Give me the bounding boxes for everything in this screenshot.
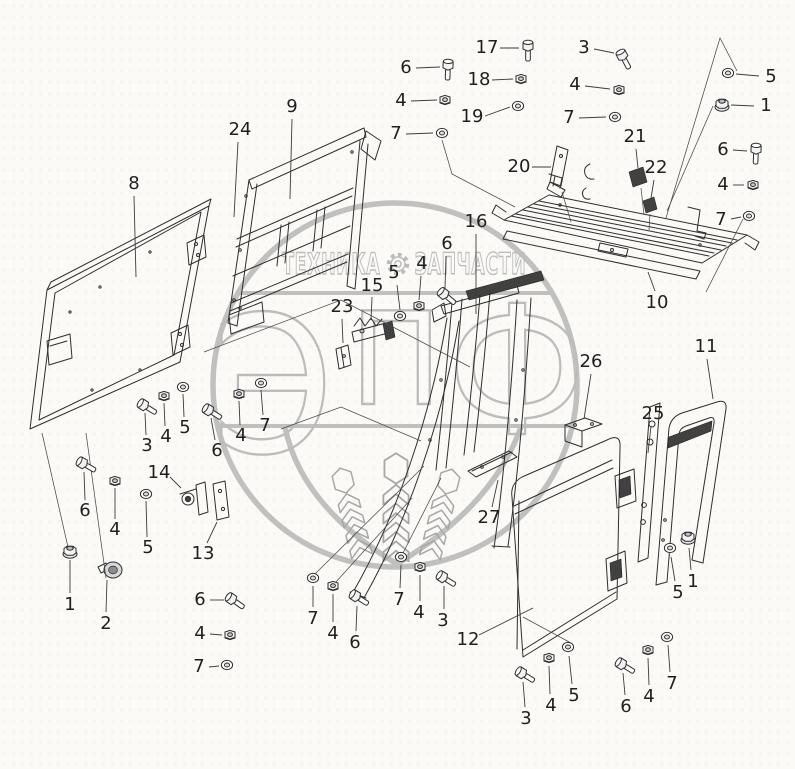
callout-label-1: 1: [64, 594, 75, 615]
nut-icon: [328, 581, 338, 590]
leader-line: [689, 548, 691, 570]
bolt-icon: [514, 666, 537, 685]
callout-label-4: 4: [416, 253, 427, 274]
nut-icon: [440, 95, 450, 104]
bolt-icon: [614, 657, 637, 676]
leader-line: [416, 67, 440, 68]
callout-label-4: 4: [717, 174, 728, 195]
callout-label-4: 4: [327, 623, 338, 644]
bolt-icon: [75, 456, 98, 475]
callout-label-5: 5: [568, 685, 579, 706]
nut-icon: [414, 301, 424, 310]
bolt-icon: [224, 591, 247, 611]
logo-letter-f: Ф: [447, 268, 586, 477]
nut-icon: [748, 180, 758, 189]
flange-nut-icon: [681, 532, 695, 544]
leader-line: [406, 133, 433, 134]
part-20-strap: [547, 146, 568, 197]
nut-icon: [225, 630, 235, 639]
leader-line: [733, 150, 747, 151]
callout-label-3: 3: [141, 435, 152, 456]
leader-line: [651, 180, 654, 198]
callout-label-26: 26: [580, 351, 603, 372]
leader-line: [134, 196, 136, 277]
callout-label-7: 7: [715, 209, 726, 230]
nut-icon: [516, 74, 526, 83]
leader-line: [485, 107, 510, 116]
washer-icon: [512, 101, 523, 110]
leader-line: [290, 119, 292, 199]
callout-label-3: 3: [578, 37, 589, 58]
part-22-spacer: [643, 197, 657, 213]
bolt-icon: [443, 59, 454, 80]
parts-catalog-figure: ТЕХНИКА ЗАПЧАСТИ Э П Ф: [0, 0, 795, 769]
callout-label-4: 4: [545, 695, 556, 716]
part-8-side-panel: [30, 199, 211, 429]
exploded-parts-diagram: ТЕХНИКА ЗАПЧАСТИ Э П Ф: [0, 0, 795, 769]
callout-label-7: 7: [193, 656, 204, 677]
leader-line: [170, 477, 181, 488]
leader-line: [84, 472, 85, 500]
leader-line: [210, 634, 222, 635]
bolt-icon: [523, 40, 533, 61]
callout-label-6: 6: [349, 632, 360, 653]
nut-icon: [159, 391, 169, 400]
callout-label-6: 6: [620, 696, 631, 717]
flange-nut-icon: [715, 99, 729, 111]
callout-label-9: 9: [286, 96, 297, 117]
leader-line: [549, 666, 550, 694]
leader-line: [164, 403, 165, 426]
leader-line: [183, 394, 184, 417]
callout-label-6: 6: [194, 589, 205, 610]
logo-letter-p: П: [350, 286, 441, 435]
callout-label-5: 5: [765, 66, 776, 87]
leader-line: [668, 645, 670, 672]
leader-line: [356, 606, 357, 631]
washer-icon: [722, 68, 733, 77]
part-25-pillar-strut: [638, 403, 660, 562]
nut-icon: [643, 645, 653, 654]
callout-label-6: 6: [717, 139, 728, 160]
callout-label-4: 4: [643, 686, 654, 707]
leader-line: [579, 117, 606, 118]
callout-label-2: 2: [100, 613, 111, 634]
bolt-icon: [136, 398, 159, 417]
callout-label-7: 7: [390, 123, 401, 144]
callout-label-19: 19: [461, 106, 484, 127]
callout-label-4: 4: [395, 90, 406, 111]
callout-label-6: 6: [211, 440, 222, 461]
callout-label-1: 1: [760, 95, 771, 116]
callout-label-7: 7: [666, 673, 677, 694]
callout-label-7: 7: [393, 589, 404, 610]
callout-label-4: 4: [109, 519, 120, 540]
washer-icon: [140, 489, 151, 498]
nut-icon: [415, 562, 425, 571]
leader-line: [411, 100, 437, 101]
callout-label-12: 12: [457, 629, 480, 650]
callout-label-5: 5: [179, 417, 190, 438]
callout-label-10: 10: [646, 292, 669, 313]
leader-line: [731, 105, 754, 106]
callout-label-14: 14: [148, 462, 171, 483]
part-11-right-frame: [656, 401, 726, 585]
washer-icon: [562, 642, 573, 651]
callout-label-8: 8: [128, 173, 139, 194]
nut-icon: [110, 476, 120, 485]
bolt-icon: [751, 143, 762, 164]
callout-label-17: 17: [476, 37, 499, 58]
callout-label-13: 13: [192, 543, 215, 564]
callout-label-5: 5: [388, 262, 399, 283]
leader-line: [342, 319, 343, 343]
leader-line: [492, 79, 513, 80]
leader-line: [707, 359, 713, 399]
leader-line: [648, 658, 649, 685]
washer-icon: [394, 311, 405, 320]
nut-icon: [614, 85, 624, 94]
washer-icon: [661, 632, 672, 641]
callout-label-4: 4: [413, 602, 424, 623]
leader-line: [106, 580, 107, 612]
callout-label-4: 4: [569, 74, 580, 95]
washer-icon: [395, 552, 406, 561]
nut-icon: [544, 653, 554, 662]
leader-line: [145, 413, 146, 435]
callout-label-11: 11: [695, 336, 718, 357]
callout-label-20: 20: [508, 156, 531, 177]
callout-label-5: 5: [142, 537, 153, 558]
leader-line: [623, 673, 625, 695]
leader-line: [671, 557, 675, 581]
callout-label-21: 21: [624, 126, 647, 147]
callout-label-7: 7: [259, 415, 270, 436]
leader-line: [648, 272, 655, 291]
washer-icon: [177, 382, 188, 391]
nut-icon: [234, 389, 244, 398]
callout-label-7: 7: [307, 608, 318, 629]
leader-line: [207, 522, 217, 543]
callout-label-6: 6: [441, 233, 452, 254]
part-14-latch: [180, 482, 208, 515]
leader-line: [569, 656, 572, 684]
washer-icon: [664, 543, 675, 552]
callout-label-6: 6: [400, 57, 411, 78]
callout-label-23: 23: [331, 296, 354, 317]
leader-line: [585, 86, 610, 89]
leader-line: [594, 49, 614, 53]
flange-nut-icon: [63, 546, 77, 558]
callout-label-3: 3: [520, 708, 531, 729]
leader-line: [731, 217, 741, 219]
callout-label-25: 25: [642, 403, 665, 424]
leader-line: [736, 74, 759, 76]
callout-label-4: 4: [235, 425, 246, 446]
callout-label-3: 3: [437, 610, 448, 631]
washer-icon: [436, 128, 447, 137]
leader-line: [479, 608, 533, 635]
bolt-icon: [435, 570, 458, 589]
callout-label-7: 7: [563, 107, 574, 128]
callout-label-22: 22: [645, 157, 668, 178]
part-23-clip: [336, 345, 351, 369]
washer-icon: [255, 378, 266, 387]
leader-line: [636, 149, 638, 168]
callout-label-15: 15: [361, 275, 384, 296]
callout-label-16: 16: [465, 211, 488, 232]
leader-line: [209, 666, 219, 667]
leader-line: [523, 682, 525, 707]
wheat-icon: [330, 453, 462, 561]
leader-line: [234, 142, 238, 217]
washer-icon: [743, 211, 754, 220]
callout-label-5: 5: [672, 582, 683, 603]
part-2-buffer: [98, 562, 122, 578]
bolt-icon: [615, 48, 634, 71]
washer-icon: [221, 660, 232, 669]
callout-label-18: 18: [468, 69, 491, 90]
leader-line: [146, 501, 147, 537]
callout-label-6: 6: [79, 500, 90, 521]
callout-label-27: 27: [478, 507, 501, 528]
callout-label-4: 4: [194, 623, 205, 644]
washer-icon: [307, 573, 318, 582]
washer-icon: [609, 112, 620, 121]
callout-label-24: 24: [229, 119, 252, 140]
callout-label-1: 1: [687, 571, 698, 592]
callout-label-4: 4: [160, 426, 171, 447]
